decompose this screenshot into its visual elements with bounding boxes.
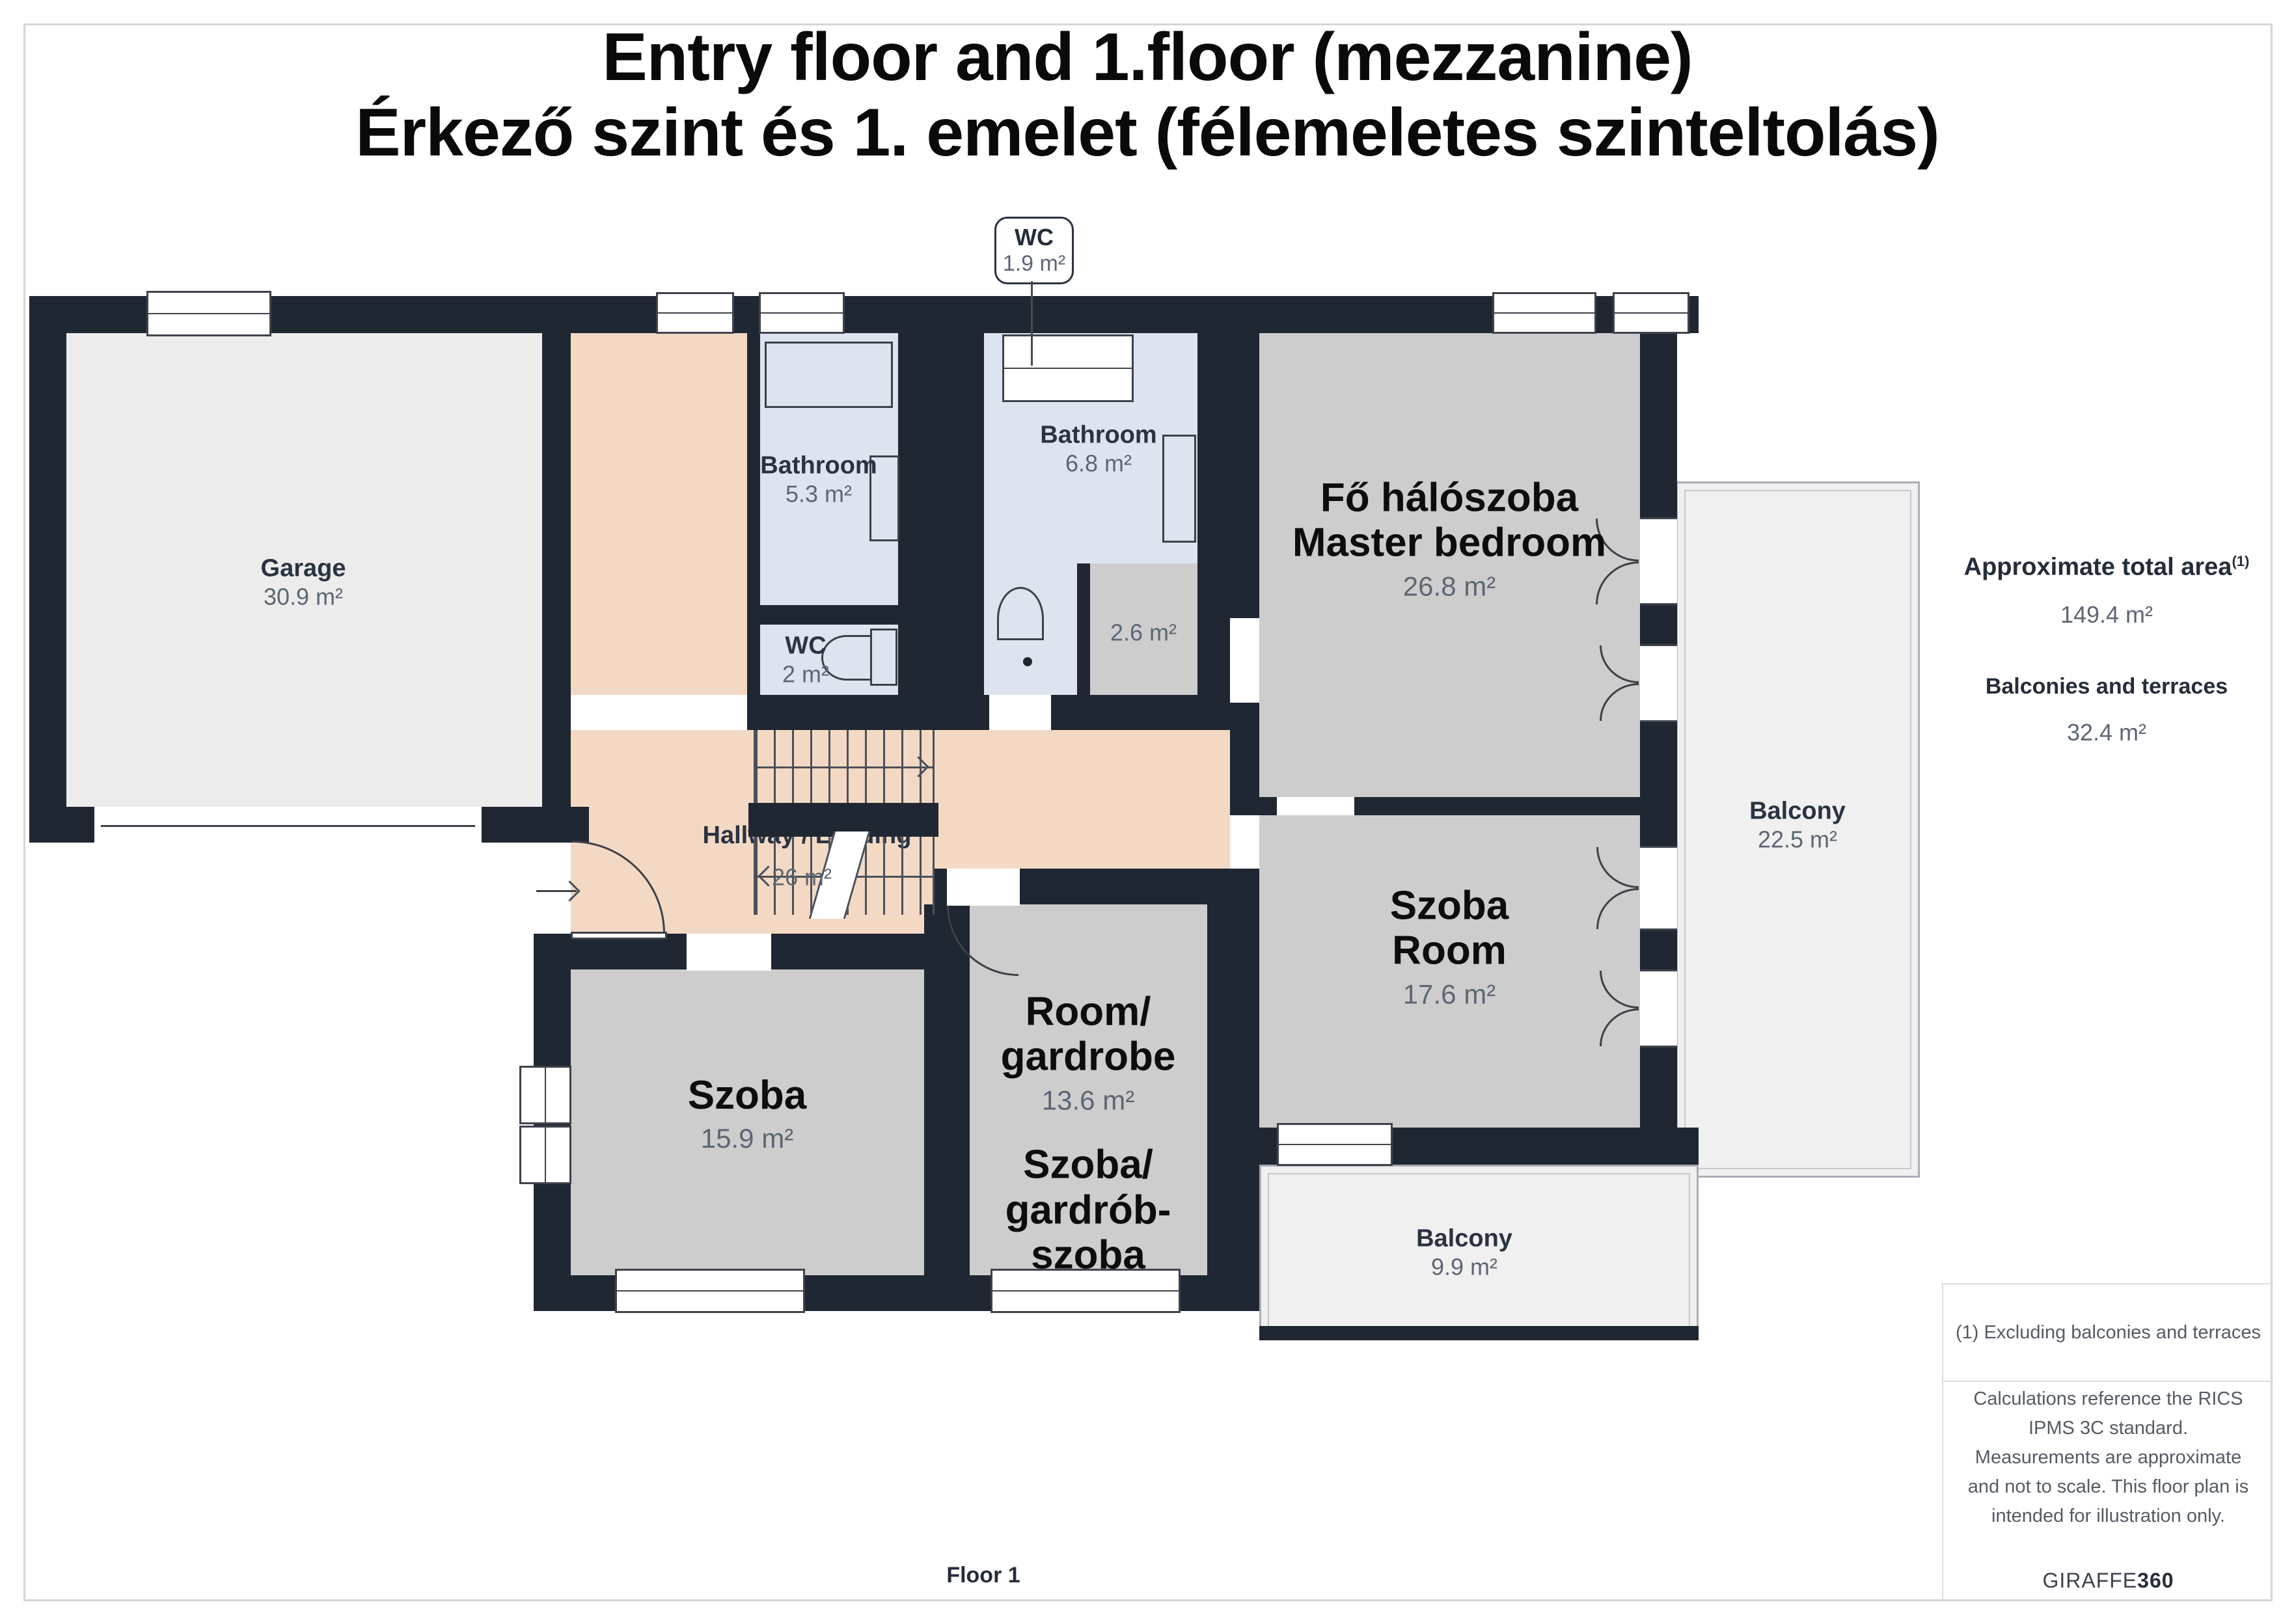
hallway-floor (571, 333, 747, 695)
footnote-text: (1) Excluding balconies and terraces (1956, 1318, 2261, 1347)
door-jamb (1640, 517, 1677, 519)
drain-dot (1023, 657, 1032, 666)
title-line-hu: Érkező szint és 1. emelet (félemeletes s… (23, 95, 2271, 170)
summary-panel: Approximate total area(1) 149.4 m² Balco… (1942, 553, 2271, 746)
window (615, 1269, 805, 1313)
door-opening (687, 934, 771, 971)
total-area-label: Approximate total area(1) (1942, 553, 2271, 582)
sink-fixture (1162, 435, 1196, 543)
wall (1640, 722, 1677, 846)
door-opening (1230, 618, 1259, 703)
shower-fixture (765, 342, 893, 408)
balcony-door-opening (1640, 969, 1677, 1048)
room-right-label: Szoba Room 17.6 m² (1390, 883, 1509, 1010)
balcony-door-opening (1640, 846, 1677, 930)
wall (760, 605, 898, 625)
entry-door-leaf (571, 932, 667, 940)
window (519, 1066, 571, 1124)
wc-small-label: WC 2 m² (782, 632, 829, 687)
wall (482, 807, 589, 843)
bathroom-left-label: Bathroom 5.3 m² (760, 452, 877, 507)
wall (1640, 333, 1677, 517)
balcony-door-opening (1640, 644, 1677, 722)
stairs-up-arrow-icon (908, 756, 929, 778)
wc-callout: WC 1.9 m² (994, 217, 1074, 284)
niche-area-label: 2.6 m² (1110, 619, 1177, 645)
stairs-upper-flight (754, 730, 935, 803)
wall (1207, 869, 1259, 1311)
window (1492, 292, 1596, 334)
disclaimer-box: Calculations reference the RICS IPMS 3C … (1942, 1381, 2273, 1599)
balcony-bottom-edge (1259, 1326, 1699, 1340)
floor-label: Floor 1 (23, 1563, 1943, 1588)
door-jamb (1640, 846, 1677, 848)
footnote-box: (1) Excluding balconies and terraces (1942, 1283, 2273, 1381)
garage-door-opening (94, 807, 482, 843)
door-jamb (1640, 603, 1677, 605)
wall (29, 807, 94, 843)
stairs-center-line (756, 766, 933, 768)
title-line-en: Entry floor and 1.floor (mezzanine) (23, 20, 2271, 95)
door-opening (947, 869, 1020, 906)
garage-door-line (101, 825, 475, 827)
wall (747, 695, 1230, 730)
garage-label: Garage 30.9 m² (261, 554, 346, 610)
door-jamb (1640, 928, 1677, 930)
wc-callout-leader-line (1031, 281, 1033, 366)
wall (747, 333, 760, 695)
door-opening (1277, 797, 1354, 815)
door-jamb (1640, 969, 1677, 971)
footnote-marker: (1) (2232, 553, 2249, 569)
wall (1640, 605, 1677, 644)
balcony-door-opening (1640, 517, 1677, 605)
balcony-glass-door (1277, 1123, 1393, 1166)
window (519, 1126, 571, 1184)
wall (1640, 930, 1677, 969)
balconies-value: 32.4 m² (1942, 719, 2271, 746)
wc-callout-area: 1.9 m² (996, 251, 1072, 277)
window (759, 292, 845, 334)
balcony-right-label: Balcony 22.5 m² (1749, 797, 1846, 852)
page-title: Entry floor and 1.floor (mezzanine) Érke… (23, 20, 2271, 171)
window (1613, 292, 1689, 334)
hallway-area-label: 26 m² (772, 863, 832, 890)
window (146, 291, 271, 336)
door-opening (989, 695, 1051, 730)
wall (29, 296, 1699, 333)
wall (1640, 1048, 1677, 1128)
wall (1077, 563, 1090, 695)
room-left-label: Szoba 15.9 m² (688, 1073, 807, 1155)
door-jamb (1640, 720, 1677, 722)
window (656, 292, 734, 334)
master-bedroom-label: Fő hálószoba Master bedroom 26.8 m² (1292, 475, 1606, 602)
wall (1230, 333, 1259, 804)
wc-callout-name: WC (996, 224, 1072, 251)
total-area-value: 149.4 m² (1942, 601, 2271, 629)
balconies-label: Balconies and terraces (1942, 674, 2271, 699)
wall (29, 296, 66, 843)
balcony-bottom-label: Balcony 9.9 m² (1416, 1225, 1512, 1280)
bathroom-window-bay (1002, 334, 1134, 402)
wardrobe-label: Room/ gardrobe 13.6 m² Szoba/ gardrób- s… (1001, 989, 1176, 1277)
bathroom-center-label: Bathroom 6.8 m² (1040, 421, 1156, 476)
door-jamb (1640, 1046, 1677, 1048)
wall (924, 904, 970, 1311)
wall (542, 333, 571, 807)
wall (898, 333, 984, 695)
giraffe360-logo: GIRAFFE360 (2042, 1565, 2174, 1597)
toilet-tank-fixture (870, 629, 897, 686)
disclaimer-text: Calculations reference the RICS IPMS 3C … (1967, 1385, 2250, 1531)
door-jamb (1640, 644, 1677, 646)
